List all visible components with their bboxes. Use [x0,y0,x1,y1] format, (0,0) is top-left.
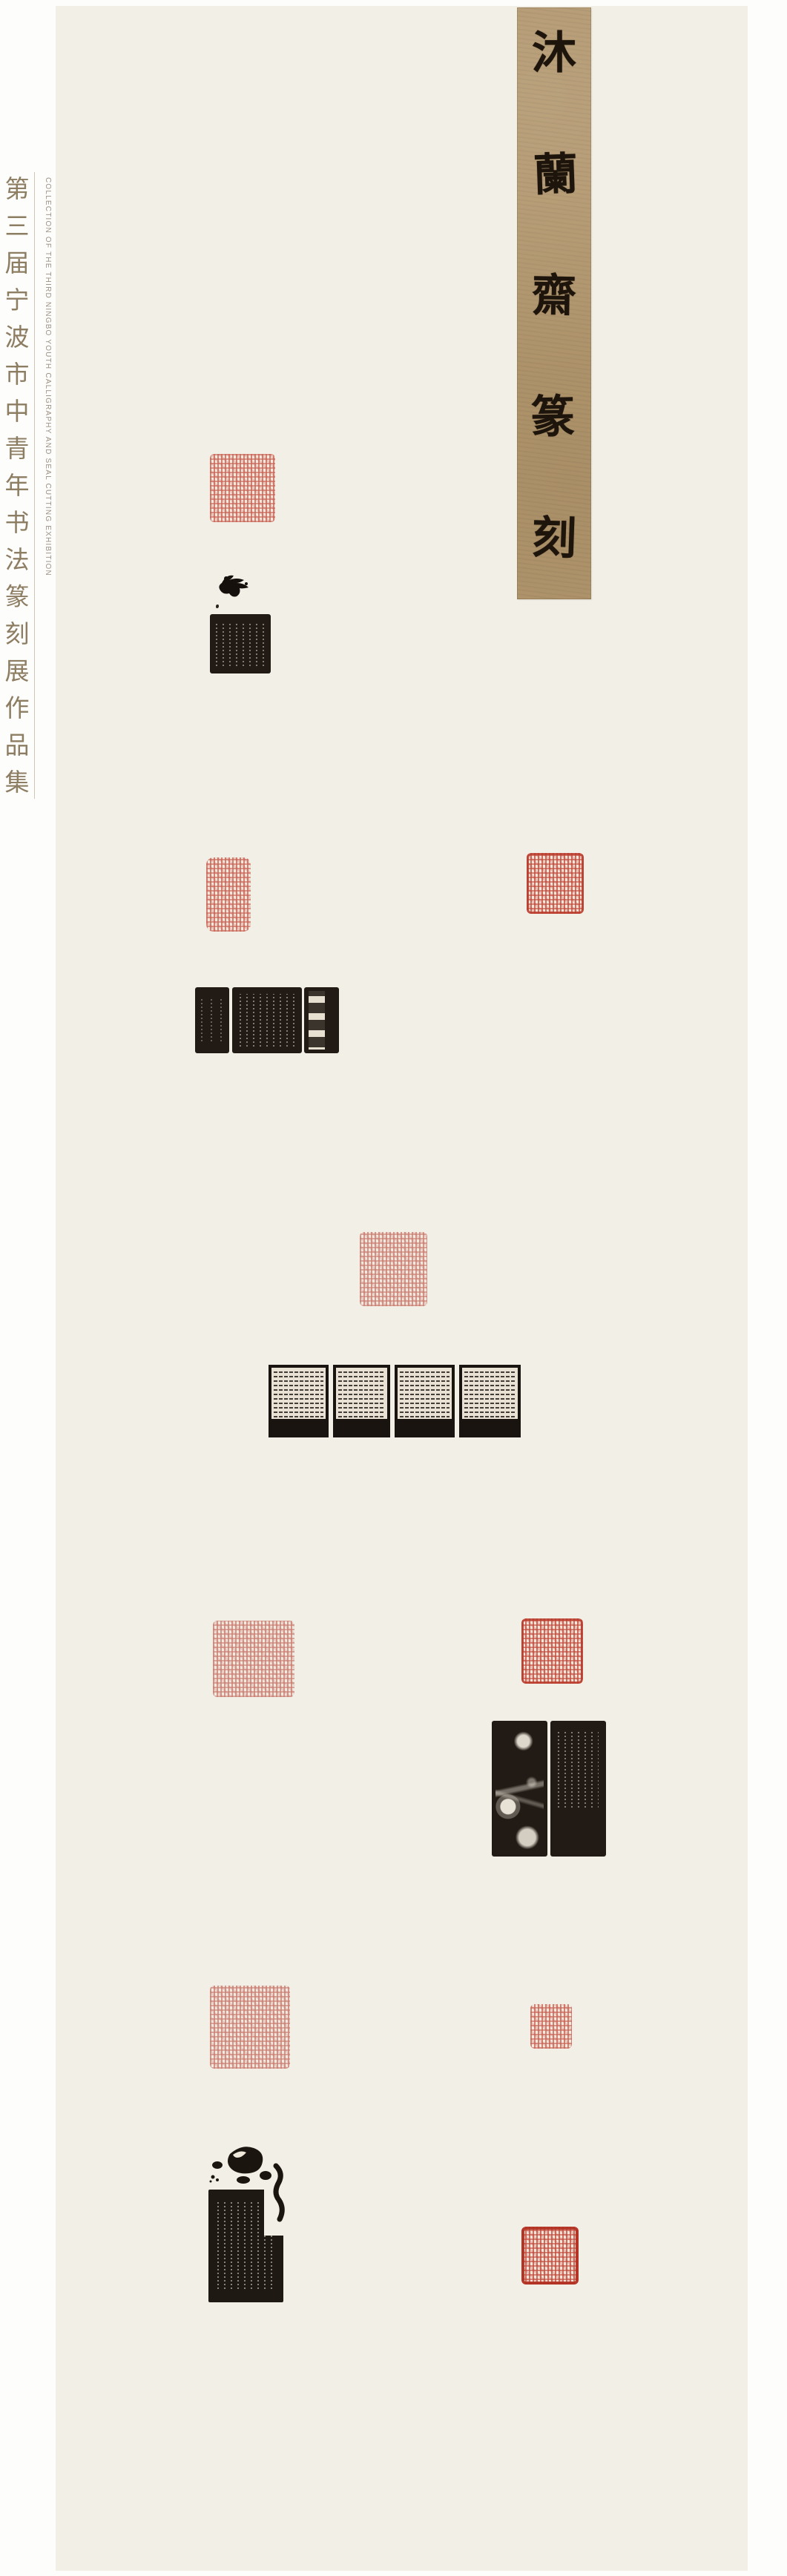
calligraphy-char-4: 篆 [530,395,575,440]
black-seal-3 [395,1365,455,1437]
edge-inscription-1 [210,614,271,673]
seal-base-band [462,1419,518,1434]
calligraphy-char-3: 齋 [531,273,576,318]
seal-glyph-texture [464,1370,516,1417]
seal-base-band [271,1419,326,1434]
edge-inscription-panel-middle [232,987,302,1053]
inscription-text-columns [240,994,294,1047]
seal-base-band [398,1419,452,1434]
red-seal-impression-2 [206,857,251,932]
beast-knob-icon [206,2142,289,2239]
seal-glyph-texture [400,1370,450,1417]
black-seal-4 [459,1365,521,1437]
inscription-text-columns [558,1731,599,1808]
seal-base-band [336,1419,387,1434]
colophon-rubbing-panel [550,1721,606,1857]
inscription-text-columns [201,998,223,1041]
orchid-motif [495,1725,544,1853]
red-seal-impression-6 [521,1618,583,1684]
seal-glyph-texture [338,1370,385,1417]
calligraphy-char-1: 沐 [532,31,576,76]
black-seal-1 [269,1365,329,1437]
carved-knob-rubbing [211,568,253,599]
black-seal-2 [333,1365,390,1437]
red-seal-impression-8 [530,2004,572,2049]
calligraphy-char-2: 蘭 [533,151,579,197]
spine-divider-line [34,172,35,799]
spine-title-english: COLLECTION OF THE THIRD NINGBO YOUTH CAL… [39,177,52,800]
black-seal-row [269,1365,521,1437]
red-seal-impression-3 [527,853,584,914]
red-seal-impression-9 [521,2227,579,2285]
spine-title-chinese: 第三届宁波市中青年书法篆刻展作品集 [3,176,33,814]
orchid-rubbing-panel [492,1721,547,1857]
calligraphy-title-strip: 沐 蘭 齋 篆 刻 [517,7,591,599]
miniature-seal-strip [309,991,325,1049]
edge-inscription-panel-right [304,987,339,1053]
red-seal-impression-7 [210,1986,290,2069]
seal-glyph-texture [274,1370,323,1417]
inscription-text-columns [216,622,265,666]
red-seal-impression-5 [213,1621,294,1697]
seal-stone-rubbing [206,2142,289,2302]
red-seal-impression-4 [360,1232,427,1306]
edge-inscription-panel-left [195,987,229,1053]
calligraphy-char-5: 刻 [531,515,577,561]
red-seal-impression-1 [210,454,275,522]
